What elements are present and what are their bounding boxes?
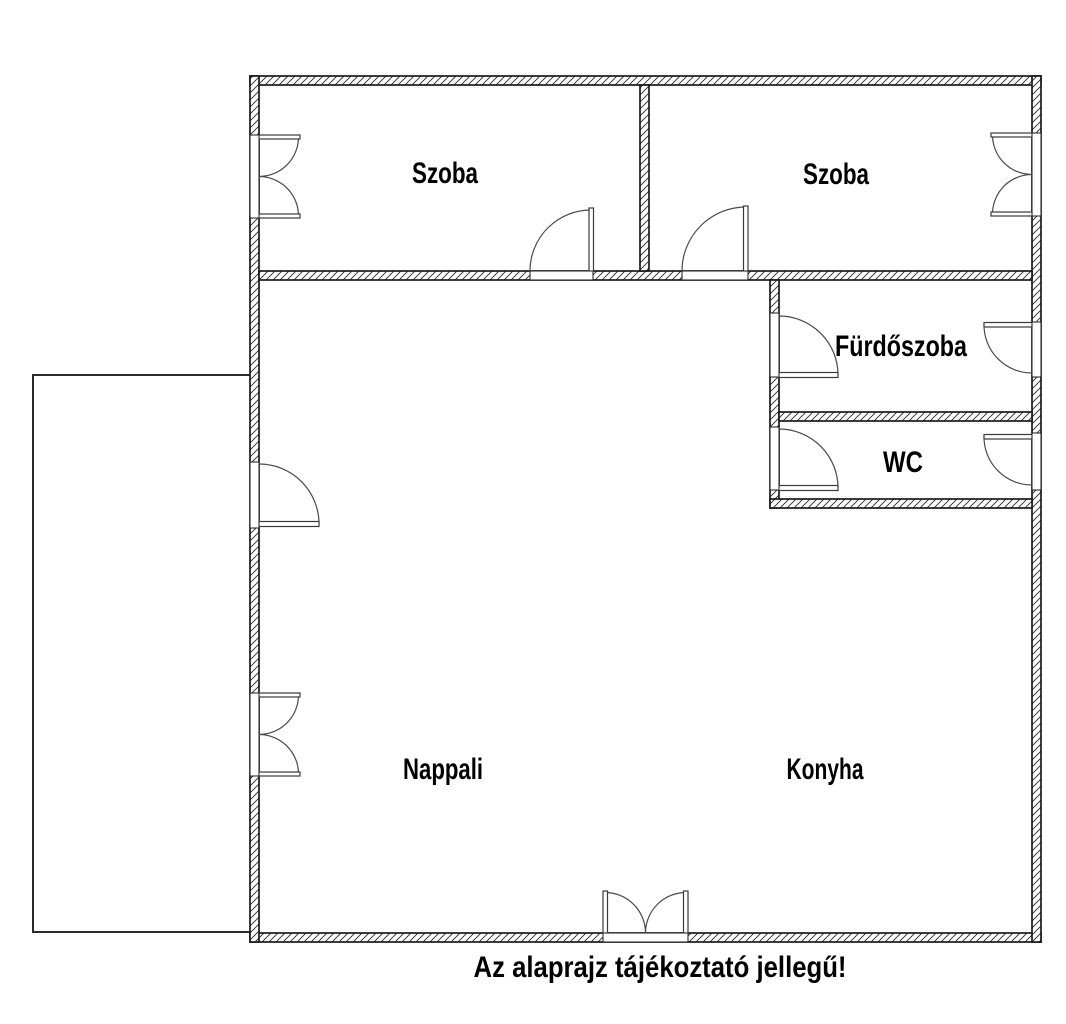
- window-swing-arc: [259, 735, 299, 775]
- door-swing-arc: [259, 464, 319, 524]
- room-label-szoba-1: Szoba: [412, 157, 478, 190]
- wall-top: [250, 76, 1041, 85]
- room-label-konyha: Konyha: [787, 753, 864, 786]
- window-swing-arc: [259, 695, 299, 735]
- window-swing-arc: [259, 177, 299, 217]
- door-swing-arc: [682, 207, 746, 271]
- door-szoba2: [682, 206, 748, 271]
- window-swing-arc: [646, 893, 687, 934]
- balcony-outline: [33, 375, 250, 932]
- window-leaf: [259, 693, 300, 697]
- door-nappali-balcony: [259, 464, 319, 527]
- door-wc: [779, 429, 838, 491]
- window-leaf: [603, 891, 608, 933]
- door-leaf: [779, 373, 838, 378]
- opening-nappali-balcony-door: [250, 462, 259, 528]
- door-swing-arc: [530, 210, 591, 271]
- window-leaf: [259, 135, 300, 139]
- opening-bathroom-window: [1032, 322, 1041, 377]
- room-label-nappali: Nappali: [403, 753, 483, 786]
- door-swing-arc: [779, 429, 838, 488]
- window-wc-right: [984, 435, 1032, 486]
- opening-wc-window: [1032, 433, 1041, 490]
- window-leaf: [684, 891, 689, 933]
- room-label-szoba-2: Szoba: [803, 158, 869, 191]
- window-nappali: [259, 693, 300, 776]
- opening-bottom-door: [603, 933, 688, 942]
- door-szoba1: [530, 208, 594, 271]
- door-leaf: [744, 206, 749, 271]
- opening-szoba2-door: [682, 271, 748, 280]
- door-bathroom: [779, 316, 838, 378]
- window-swing-arc: [605, 893, 646, 934]
- window-swing-arc: [984, 325, 1032, 373]
- window-leaf: [984, 435, 1032, 440]
- room-label-wc: WC: [883, 446, 923, 479]
- door-swing-arc: [779, 316, 838, 375]
- wall-bedrooms-bottom: [259, 271, 1032, 280]
- window-leaf: [259, 214, 300, 218]
- floor-plan-canvas: Szoba Szoba Fürdőszoba WC Nappali Konyha…: [0, 0, 1066, 1024]
- door-leaf: [259, 522, 319, 527]
- window-swing-arc: [993, 135, 1033, 175]
- window-swing-arc: [984, 437, 1032, 485]
- window-leaf: [984, 323, 1032, 328]
- door-leaf: [779, 486, 838, 491]
- floor-plan-caption: Az alaprajz tájékoztató jellegű!: [474, 951, 847, 984]
- window-bathroom-right: [984, 323, 1032, 374]
- opening-nappali-window: [250, 693, 259, 776]
- window-szoba2: [991, 133, 1032, 216]
- window-leaf: [991, 212, 1032, 216]
- opening-szoba1-window: [250, 135, 259, 218]
- window-bottom-double-door: [603, 891, 688, 933]
- opening-szoba2-window: [1032, 133, 1041, 216]
- opening-szoba1-door: [530, 271, 593, 280]
- window-swing-arc: [993, 175, 1033, 215]
- opening-bathroom-door: [770, 313, 779, 377]
- wall-bedroom-divider: [640, 85, 649, 271]
- window-swing-arc: [259, 137, 299, 177]
- window-leaf: [259, 772, 300, 776]
- opening-wc-door: [770, 427, 779, 490]
- window-leaf: [991, 133, 1032, 137]
- room-label-furdoszoba: Fürdőszoba: [835, 330, 967, 363]
- door-leaf: [589, 208, 594, 271]
- wall-bathroom-wc-divider: [779, 412, 1032, 421]
- floor-plan: Szoba Szoba Fürdőszoba WC Nappali Konyha…: [0, 0, 1066, 1024]
- window-szoba1: [259, 135, 300, 218]
- walls: [250, 76, 1041, 942]
- wall-wc-bottom: [770, 499, 1032, 508]
